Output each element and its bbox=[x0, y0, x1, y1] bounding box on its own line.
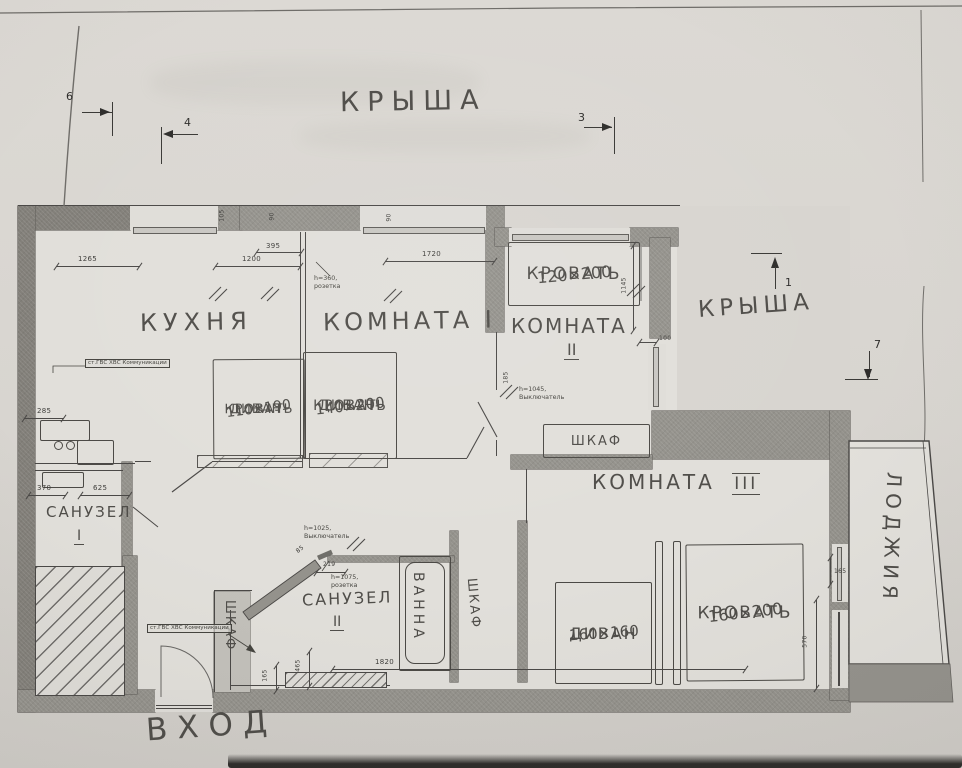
stove-burner bbox=[66, 441, 75, 450]
section-marker-4: 4 bbox=[184, 116, 191, 129]
dimension-label: 90 bbox=[386, 206, 393, 230]
section-marker-6: 6 bbox=[66, 90, 73, 103]
marker-line bbox=[775, 267, 776, 289]
dimension-line bbox=[215, 266, 301, 267]
dimension-label: 165 bbox=[834, 568, 846, 575]
marker-arrow-right bbox=[602, 123, 612, 131]
floor-plan-photo: ДИВАН- КРОВАТЬ 110×190 ДИВАН- КРОВАТЬ 14… bbox=[0, 0, 962, 768]
section-marker-7: 7 bbox=[874, 338, 881, 351]
dimension-line bbox=[56, 266, 140, 267]
note-line: розетка bbox=[331, 582, 358, 590]
room-number: III bbox=[732, 473, 760, 495]
note-line: розетка bbox=[314, 283, 340, 291]
room-name: КОМНАТА bbox=[592, 470, 715, 494]
note-line: h=1045, bbox=[519, 386, 564, 394]
section-marker-1: 1 bbox=[785, 276, 792, 289]
dimension-label: 90 bbox=[269, 205, 276, 229]
window-glazing bbox=[653, 347, 659, 407]
marker-line bbox=[845, 379, 878, 380]
wardrobe-panel bbox=[655, 541, 663, 685]
window-glazing bbox=[363, 227, 485, 234]
room-label-loggia: ЛОДЖИЯ bbox=[878, 472, 907, 606]
dimension-label: 1145 bbox=[621, 274, 628, 298]
bed-160x200: КРОВАТЬ 160×200 bbox=[685, 543, 804, 681]
dimension-label: 1720 bbox=[422, 250, 441, 258]
wall-top-mid bbox=[240, 206, 360, 230]
window-glazing bbox=[133, 227, 217, 234]
wall-closet-right bbox=[518, 521, 527, 682]
hall-wardrobe-side bbox=[214, 590, 215, 692]
room-number: II bbox=[330, 614, 344, 631]
note-switch: h=1045, Выключатель bbox=[519, 386, 564, 402]
dimension-label: 370 bbox=[37, 484, 51, 492]
dimension-line bbox=[830, 558, 831, 584]
dimension-label: 1820 bbox=[375, 658, 394, 666]
roof-area bbox=[495, 206, 677, 228]
room-label-bath2: САНУЗЕЛ bbox=[302, 587, 393, 609]
dimension-line bbox=[80, 495, 130, 496]
note-line: Выключатель bbox=[304, 533, 349, 541]
kitchen-appliance bbox=[77, 440, 114, 465]
dimension-line bbox=[816, 600, 817, 688]
dimension-label: 165 bbox=[262, 664, 269, 688]
wardrobe-room2: ШКАФ bbox=[543, 424, 650, 458]
note-socket: h=360, розетка bbox=[314, 275, 340, 291]
partition-room2 bbox=[496, 332, 497, 390]
dimension-line bbox=[385, 261, 495, 262]
wall-bottom bbox=[213, 690, 850, 712]
dimension-line bbox=[256, 252, 302, 253]
annotation-roof-top: КРЫША bbox=[340, 85, 487, 119]
note-line: h=1075, bbox=[331, 574, 358, 582]
room-label-room2-number: II bbox=[564, 340, 579, 359]
dimension-label: 219 bbox=[323, 561, 335, 568]
partition-bath1-top bbox=[35, 470, 123, 471]
dimension-line bbox=[309, 652, 310, 686]
room-label-bath1: САНУЗЕЛ bbox=[46, 503, 132, 521]
marker-line bbox=[614, 117, 615, 154]
room-label-room2: КОМНАТА bbox=[511, 314, 627, 338]
furniture-label: ШКАФ bbox=[571, 434, 622, 449]
room-number: I bbox=[74, 528, 84, 545]
dimension-line bbox=[332, 669, 746, 670]
partition-corridor bbox=[135, 461, 151, 462]
partition-room2 bbox=[496, 440, 497, 456]
hall-wardrobe-top bbox=[214, 590, 252, 591]
dimension-label: 100 bbox=[659, 335, 671, 342]
kitchen-counter bbox=[40, 420, 90, 441]
dimension-label: 105 bbox=[219, 204, 226, 228]
dimension-label: 1200 bbox=[242, 255, 261, 263]
door-loggia bbox=[832, 610, 848, 688]
shaft-hatched-area bbox=[35, 566, 125, 696]
window-glazing bbox=[512, 234, 629, 241]
dimension-label: 285 bbox=[37, 407, 51, 415]
dimension-label: 1265 bbox=[78, 255, 97, 263]
note-line: Выключатель bbox=[519, 394, 564, 402]
annotation-entrance: ВХОД bbox=[145, 703, 278, 748]
wardrobe-panel bbox=[673, 541, 681, 685]
note-socket: h=1075, розетка bbox=[331, 574, 358, 590]
wall-room3-top bbox=[652, 411, 830, 459]
door-leaf-line bbox=[838, 612, 840, 686]
wall-edge-line bbox=[18, 205, 680, 206]
wall-shaft-right bbox=[123, 556, 137, 694]
sofabed-140x200: ДИВАН- КРОВАТЬ 140×200 bbox=[303, 352, 397, 459]
sofabed-110x190: ДИВАН- КРОВАТЬ 110×190 bbox=[213, 359, 306, 460]
note-line: h=1025, bbox=[304, 525, 349, 533]
marker-line bbox=[112, 102, 113, 136]
threshold-line bbox=[156, 705, 212, 706]
dimension-label: 185 bbox=[503, 366, 510, 390]
dimension-line bbox=[639, 342, 657, 343]
section-marker-3: 3 bbox=[578, 111, 585, 124]
dimension-label: 625 bbox=[93, 484, 107, 492]
wall-closet-left bbox=[450, 531, 458, 682]
paper-smudge bbox=[300, 120, 590, 152]
wall-room2-right bbox=[650, 238, 670, 338]
room-label-room1: КОМНАТА I bbox=[323, 305, 496, 336]
dimension-label: 395 bbox=[266, 242, 280, 250]
dimension-line bbox=[276, 666, 277, 690]
stove-burner bbox=[54, 441, 63, 450]
note-pipes: ст.ГВС ХВС Коммуникации bbox=[147, 624, 232, 633]
note-line: h=360, bbox=[314, 275, 340, 283]
dimension-line bbox=[28, 495, 66, 496]
dimension-label: 465 bbox=[295, 654, 302, 678]
room-label-bath1-number: I bbox=[74, 528, 84, 544]
dimension-line bbox=[633, 246, 634, 330]
room-label-room3: КОМНАТА III bbox=[592, 470, 760, 494]
wall-left bbox=[18, 206, 35, 712]
marker-line bbox=[751, 253, 782, 254]
note-switch: h=1025, Выключатель bbox=[304, 525, 349, 541]
marker-arrow-right bbox=[100, 108, 110, 116]
dimension-label: 570 bbox=[802, 630, 809, 654]
marker-line bbox=[161, 127, 162, 164]
marker-line bbox=[172, 134, 198, 135]
dimension-line bbox=[316, 572, 346, 573]
room-label-bath2-number: II bbox=[330, 614, 344, 630]
note-pipes: ст.ГВС ХВС Коммуникации bbox=[85, 359, 170, 368]
furniture-size: 110×190 bbox=[226, 397, 293, 421]
label-bathtub: ВАННА bbox=[410, 572, 426, 642]
room-label-kitchen: КУХНЯ bbox=[140, 307, 253, 337]
dimension-line bbox=[24, 418, 64, 419]
room-number: II bbox=[564, 340, 579, 360]
room3-left-line bbox=[526, 469, 527, 523]
photo-bottom-shadow bbox=[228, 754, 962, 768]
